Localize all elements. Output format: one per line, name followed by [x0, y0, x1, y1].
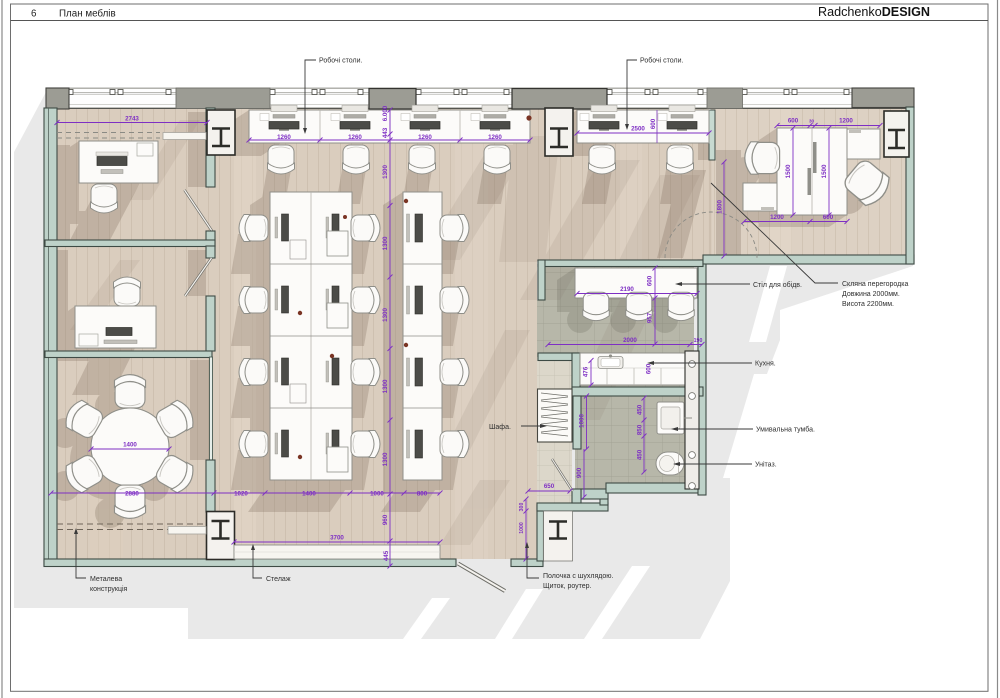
- svg-text:План меблів: План меблів: [59, 9, 116, 20]
- svg-text:1260: 1260: [488, 134, 502, 141]
- svg-text:Щиток, роутер.: Щиток, роутер.: [543, 583, 592, 590]
- svg-text:1260: 1260: [418, 134, 432, 141]
- svg-text:1400: 1400: [123, 442, 137, 449]
- svg-text:1260: 1260: [348, 134, 362, 141]
- svg-text:1260: 1260: [277, 134, 291, 141]
- svg-text:2743: 2743: [125, 116, 139, 123]
- svg-text:конструкція: конструкція: [90, 585, 128, 593]
- svg-text:2000: 2000: [623, 337, 637, 344]
- svg-text:1300: 1300: [382, 452, 389, 466]
- svg-text:1200: 1200: [770, 214, 784, 221]
- svg-text:Унітаз.: Унітаз.: [755, 461, 777, 469]
- svg-text:RadchenkoDESIGN: RadchenkoDESIGN: [818, 5, 930, 19]
- svg-text:1000: 1000: [519, 522, 525, 534]
- svg-text:6.000: 6.000: [382, 105, 389, 121]
- svg-text:450: 450: [637, 404, 644, 415]
- svg-text:1300: 1300: [382, 165, 389, 179]
- svg-text:6: 6: [31, 9, 37, 20]
- svg-text:1500: 1500: [785, 164, 792, 178]
- svg-text:1020: 1020: [234, 491, 248, 498]
- svg-text:1000: 1000: [579, 414, 586, 428]
- svg-text:1500: 1500: [821, 164, 828, 178]
- svg-text:300: 300: [519, 503, 525, 512]
- svg-text:Робочі столи.: Робочі столи.: [319, 57, 363, 65]
- svg-text:Робочі столи.: Робочі столи.: [640, 57, 684, 65]
- svg-text:1300: 1300: [382, 379, 389, 393]
- svg-text:2500: 2500: [631, 126, 645, 133]
- svg-text:Довжина 2000мм.: Довжина 2000мм.: [842, 291, 900, 298]
- svg-text:1300: 1300: [382, 308, 389, 322]
- svg-text:800: 800: [417, 491, 428, 498]
- svg-text:1000: 1000: [370, 491, 384, 498]
- svg-text:600: 600: [788, 118, 799, 125]
- svg-text:445: 445: [383, 550, 390, 561]
- svg-text:2880: 2880: [125, 491, 139, 498]
- svg-text:600: 600: [650, 118, 657, 129]
- svg-text:Шафа.: Шафа.: [489, 424, 511, 431]
- svg-text:850: 850: [637, 424, 644, 435]
- svg-text:1200: 1200: [839, 118, 853, 125]
- svg-text:Висота 2200мм.: Висота 2200мм.: [842, 301, 894, 308]
- svg-text:960: 960: [382, 514, 389, 525]
- svg-text:Металева: Металева: [90, 576, 122, 583]
- svg-text:Скляна перегородка: Скляна перегородка: [842, 281, 908, 288]
- svg-text:Кухня.: Кухня.: [755, 361, 776, 368]
- svg-text:476: 476: [583, 366, 590, 377]
- svg-text:600: 600: [646, 363, 653, 374]
- svg-text:600: 600: [647, 275, 654, 286]
- svg-text:30: 30: [809, 119, 815, 124]
- svg-text:Стіл для обідв.: Стіл для обідв.: [753, 281, 802, 289]
- svg-text:1800: 1800: [717, 200, 724, 214]
- svg-text:Стелаж: Стелаж: [266, 576, 291, 583]
- svg-text:450: 450: [637, 449, 644, 460]
- svg-text:3700: 3700: [330, 535, 344, 542]
- svg-text:957: 957: [647, 312, 654, 323]
- svg-text:1300: 1300: [382, 236, 389, 250]
- svg-text:Умивальна тумба.: Умивальна тумба.: [756, 426, 815, 434]
- svg-text:1400: 1400: [302, 491, 316, 498]
- svg-text:Полочка с шухлядою.: Полочка с шухлядою.: [543, 573, 614, 580]
- svg-text:190: 190: [694, 338, 703, 344]
- svg-text:443: 443: [382, 127, 389, 138]
- svg-text:650: 650: [544, 483, 555, 490]
- svg-text:600: 600: [823, 214, 834, 221]
- svg-text:900: 900: [576, 467, 583, 478]
- svg-text:2190: 2190: [620, 286, 634, 293]
